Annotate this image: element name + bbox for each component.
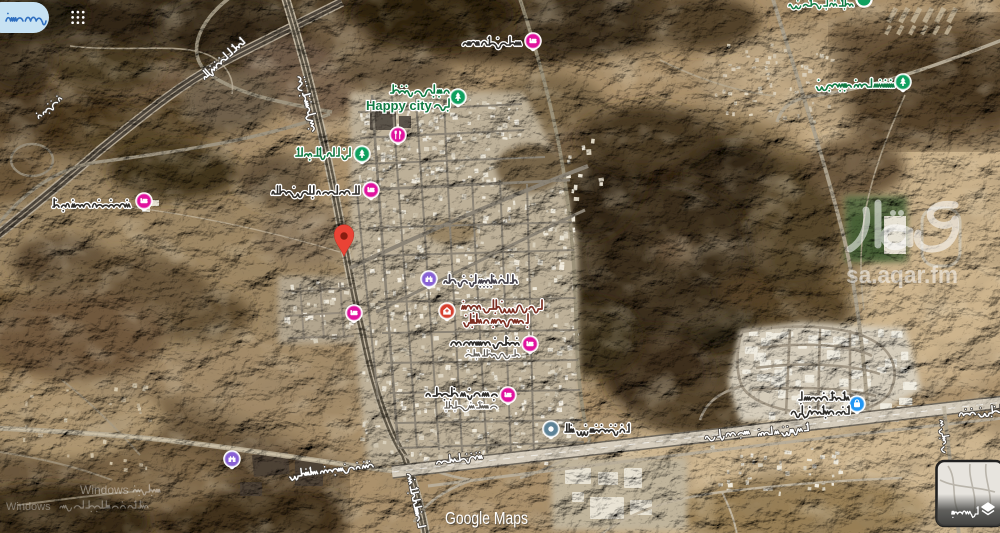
svg-text:Windows: Windows	[6, 501, 51, 513]
svg-text:Windows: Windows	[80, 483, 129, 497]
svg-text:sa.aqar.fm: sa.aqar.fm	[846, 262, 958, 289]
svg-text:Happy city: Happy city	[366, 98, 433, 113]
svg-text:Google Maps: Google Maps	[445, 508, 528, 528]
